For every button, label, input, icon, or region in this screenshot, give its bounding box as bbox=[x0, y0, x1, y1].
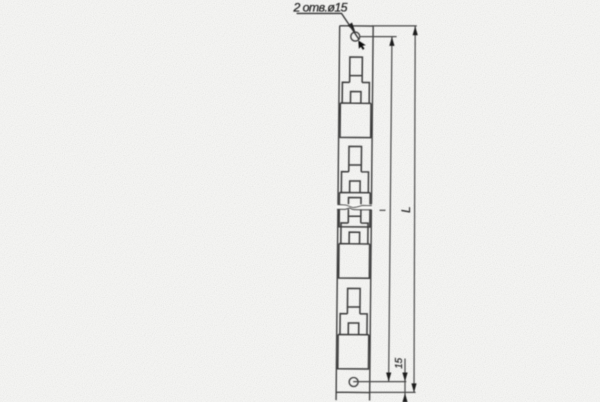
svg-text:2 отв.ø15: 2 отв.ø15 bbox=[293, 0, 348, 14]
svg-text:15: 15 bbox=[394, 357, 405, 368]
svg-text:L: L bbox=[401, 206, 413, 212]
